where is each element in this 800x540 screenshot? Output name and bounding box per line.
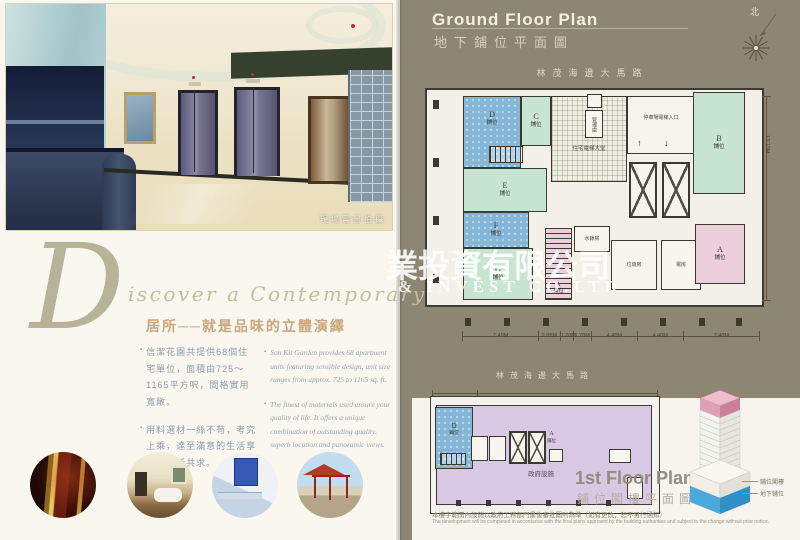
- bullet-marker-icon: ▪: [264, 349, 266, 387]
- side-door: [308, 96, 352, 184]
- pavilion-beam: [312, 475, 350, 477]
- refuse-room: 垃圾房: [611, 240, 657, 290]
- elevator-right-light: [251, 73, 254, 76]
- dim-label: 1.70M: [573, 331, 591, 341]
- artwork-frame: [124, 92, 156, 144]
- building-label-ground: 地下鋪位: [760, 489, 784, 498]
- pavilion-post: [329, 476, 331, 500]
- unit-F-letter: F: [494, 222, 498, 231]
- unit-E-letter: E: [503, 182, 508, 191]
- arrow-up-icon: ↑: [637, 138, 642, 148]
- first-unit-D-suffix: 鋪位: [449, 431, 459, 437]
- thumb-counter: [218, 492, 262, 499]
- mailbox-room: [587, 94, 602, 108]
- brochure-page: 現場實景拍攝 D iscover a Contemporary Classic …: [0, 0, 800, 540]
- dimension-line-first-top: [432, 388, 658, 394]
- disclaimer-en: The development will be completed in acc…: [432, 519, 769, 525]
- unit-E-suffix: 鋪位: [499, 191, 510, 198]
- lift-shaft-1: [629, 162, 657, 218]
- unit-C-suffix: 鋪位: [530, 122, 541, 129]
- arcade-pillar: [736, 318, 742, 326]
- unit-A-suffix: 鋪位: [714, 255, 725, 262]
- first-unit-A-label: A 鋪位: [547, 431, 556, 443]
- dim-label: 2.05M: [538, 331, 559, 341]
- unit-D-suffix: 鋪位: [486, 120, 497, 127]
- unit-A: A 鋪位: [695, 224, 745, 284]
- thumb-picture: [171, 466, 187, 484]
- wall-stub: [433, 274, 439, 283]
- unit-A-strip-suffix: 鋪位: [553, 289, 563, 295]
- thumb-door-glow: [30, 452, 96, 518]
- bullet-zh-1-text: 信潔花園共提供68個住宅單位，面積由725～1165平方呎，間格實用寬敞。: [146, 344, 258, 411]
- stairs-first-unit-D: [440, 453, 466, 465]
- thumb-door-detail: [30, 452, 96, 518]
- residential-lift-lobby: [551, 96, 627, 182]
- unit-F-suffix: 鋪位: [490, 231, 501, 238]
- management-office: 管理處: [585, 110, 603, 138]
- first-small-room: [609, 449, 631, 463]
- thumb-sofa: [154, 488, 182, 502]
- unit-G-letter: G: [495, 266, 501, 275]
- ground-plan-title-en: Ground Floor Plan: [432, 10, 598, 30]
- first-unit-D-letter: D: [451, 423, 456, 431]
- dim-label: 4.40M: [637, 331, 683, 341]
- arcade-pillar: [465, 318, 471, 326]
- thumb-bathroom: [212, 452, 278, 518]
- lobby-photo: 現場實景拍攝: [6, 4, 392, 230]
- leader-line: [742, 481, 758, 482]
- arcade-pillar: [621, 318, 627, 326]
- ground-plan-title-zh: 地下鋪位平面圖: [434, 32, 574, 51]
- thumb-cabinet: [234, 458, 258, 486]
- elevator-left-light: [192, 76, 195, 79]
- elevator-door-right: [234, 87, 280, 176]
- dim-label: 7.40M: [462, 331, 538, 341]
- first-lift-shaft-2: [528, 431, 546, 464]
- first-pillar: [486, 500, 491, 506]
- arrow-down-icon: ↓: [664, 138, 669, 148]
- bullet-zh-1: ▪ 信潔花園共提供68個住宅單位，面積由725～1165平方呎，間格實用寬敞。: [140, 344, 258, 411]
- street-label-ground: 林茂海邊大馬路: [425, 66, 760, 79]
- first-pillar: [516, 500, 521, 506]
- pavilion-roof: [303, 464, 345, 475]
- carpark-entrance-label: 停車場電梯入口: [628, 115, 694, 121]
- wall-stub: [433, 216, 439, 225]
- water-meter-label: 水錶房: [584, 236, 599, 242]
- bullet-marker-icon: ▪: [264, 401, 266, 452]
- ceiling-light-red: [351, 24, 355, 28]
- first-pillar: [546, 500, 551, 506]
- elevator-left-split: [194, 90, 195, 172]
- arcade-pillar: [660, 318, 666, 326]
- bullet-marker-icon: ▪: [140, 347, 142, 411]
- dim-label: 1.20M: [560, 331, 573, 341]
- title-underline: [432, 28, 688, 29]
- thumb-doorway: [135, 472, 147, 496]
- dim-label: 7.40M: [683, 331, 760, 341]
- elevator-left-indicator: [189, 82, 201, 86]
- first-pillar: [456, 500, 461, 506]
- bullet-en-1: ▪ Son Kit Garden provides 68 apartment u…: [264, 346, 392, 387]
- bullet-en-1-text: Son Kit Garden provides 68 apartment uni…: [270, 346, 392, 387]
- building-label-mezzanine: 鋪位閣樓: [760, 477, 784, 486]
- unit-C-letter: C: [533, 113, 538, 122]
- ground-floor-plan: D 鋪位 C 鋪位 住宅電梯大堂 管理處 停車場電梯入口 ↑ ↓ B 鋪位 E …: [425, 88, 764, 307]
- lift-shaft-2: [662, 162, 690, 218]
- unit-G-suffix: 鋪位: [492, 275, 503, 282]
- reception-back-wall: [6, 66, 104, 154]
- dimension-line-bottom: 7.40M 2.05M 1.20M 1.70M 4.40M 4.40M 7.40…: [462, 331, 760, 341]
- unit-F: F 鋪位: [463, 212, 529, 248]
- dim-right-label: 13.10M: [764, 135, 770, 153]
- wall-stub: [433, 158, 439, 167]
- arcade-pillar: [543, 318, 549, 326]
- water-meter-room: 水錶房: [574, 226, 610, 252]
- compass-icon: [720, 8, 792, 66]
- leader-line: [742, 493, 758, 494]
- mailbox-panel: [348, 70, 392, 202]
- arcade-pillar: [504, 318, 510, 326]
- unit-G: G 鋪位: [463, 248, 533, 300]
- unit-B-letter: B: [716, 135, 721, 144]
- unit-A-strip-letter: A: [556, 282, 560, 289]
- building-axonometric: [668, 384, 762, 518]
- dimension-line-right: [766, 96, 767, 301]
- photo-caption: 現場實景拍攝: [320, 214, 386, 225]
- management-office-label: 管理處: [591, 117, 597, 132]
- unit-C: C 鋪位: [521, 96, 551, 146]
- wall-stub: [433, 100, 439, 109]
- first-lift-shaft-1: [509, 431, 527, 464]
- ceiling-recess-small: [306, 6, 378, 44]
- thumb-living-room: [127, 452, 193, 518]
- unit-D-letter: D: [489, 111, 495, 120]
- floor-reflection: [127, 184, 266, 224]
- unit-A-letter: A: [717, 246, 723, 255]
- unit-B-suffix: 鋪位: [713, 144, 724, 151]
- stairs-unit-D: [489, 146, 523, 163]
- arcade-pillar: [582, 318, 588, 326]
- washroom-1: [471, 436, 488, 461]
- first-unit-A-letter: A: [547, 431, 556, 438]
- section-heading: 居所──就是品味的立體演繹: [146, 316, 346, 336]
- bullet-en-2-text: The finest of materials used ensure your…: [270, 398, 392, 452]
- bullets-english: ▪ Son Kit Garden provides 68 apartment u…: [264, 346, 392, 463]
- pavilion-post: [346, 476, 348, 498]
- dim-label: 4.40M: [591, 331, 637, 341]
- washroom-2: [489, 436, 506, 461]
- unit-A-stair-strip: A 鋪位: [545, 228, 572, 300]
- first-small-room: [549, 449, 563, 462]
- elevator-right-indicator: [246, 79, 260, 83]
- dim-tick: [762, 96, 771, 97]
- elevator-door-left: [178, 90, 218, 175]
- disclaimer-zh: 本樓宇範圍內設施以政府工務部門最後審批圖則為準（如有更改，恕不另行通知）: [432, 509, 666, 519]
- unit-B: B 鋪位: [693, 92, 745, 194]
- street-label-first: 林茂海邊大馬路: [430, 370, 660, 381]
- dim-tick: [762, 300, 771, 301]
- bullet-en-2: ▪ The finest of materials used ensure yo…: [264, 398, 392, 452]
- first-unit-A-suffix: 鋪位: [547, 438, 556, 443]
- refuse-room-label: 垃圾房: [626, 262, 641, 268]
- page-gutter: [396, 0, 402, 540]
- thumb-pavilion: [297, 452, 363, 518]
- electrical-room-label: 電房: [676, 262, 686, 268]
- pavilion-post: [314, 476, 316, 498]
- unit-E: E 鋪位: [463, 168, 547, 212]
- lobby-label: 住宅電梯大堂: [551, 146, 627, 153]
- arcade-pillar: [699, 318, 705, 326]
- elevator-right-split: [253, 87, 254, 173]
- reception-shelf: [6, 120, 104, 124]
